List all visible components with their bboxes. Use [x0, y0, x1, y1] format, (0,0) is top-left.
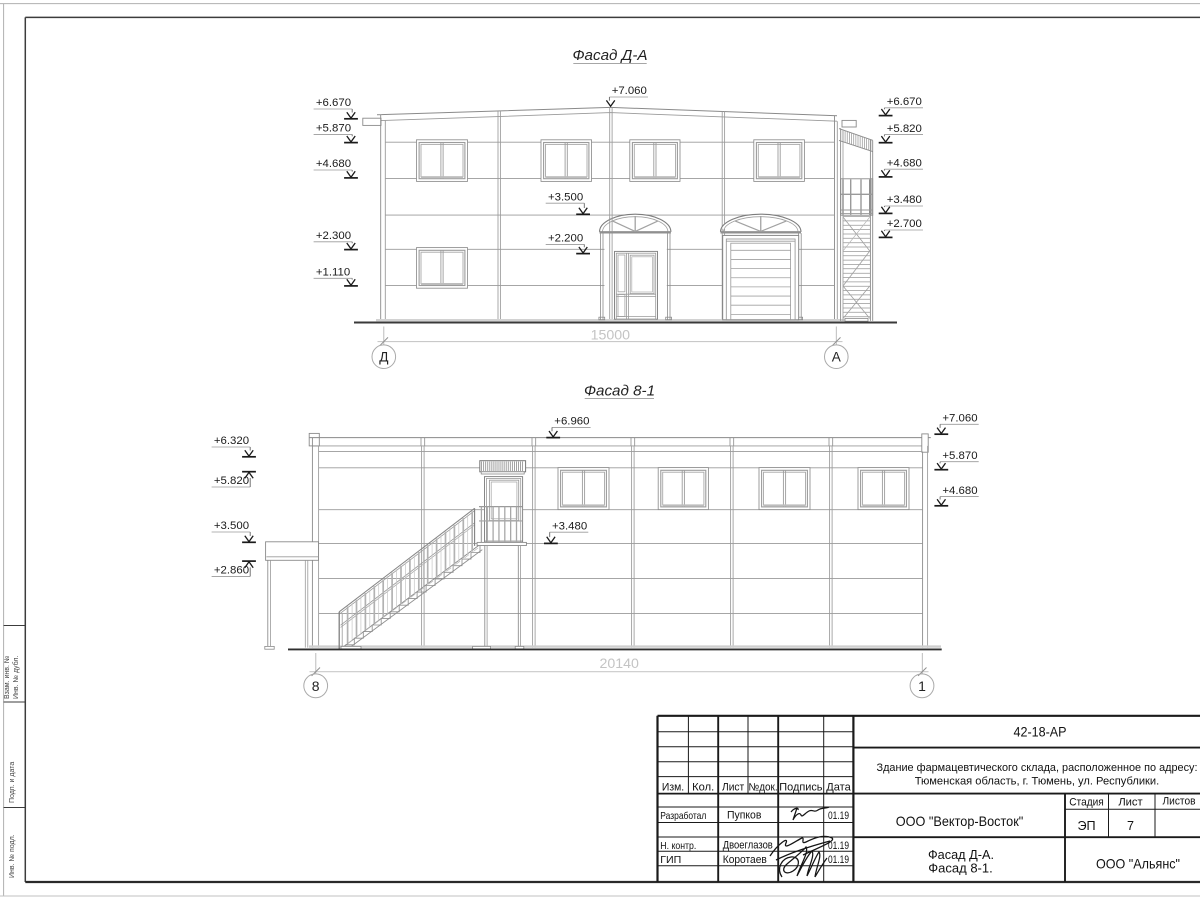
svg-text:1: 1	[918, 678, 926, 694]
svg-text:+3.500: +3.500	[548, 191, 583, 203]
svg-text:Фасад 8-1.: Фасад 8-1.	[928, 860, 993, 875]
svg-text:+1.110: +1.110	[316, 267, 350, 279]
svg-text:Разработал: Разработал	[660, 810, 706, 822]
svg-text:+3.480: +3.480	[552, 520, 587, 532]
svg-text:+5.870: +5.870	[942, 450, 977, 462]
svg-text:+6.320: +6.320	[214, 435, 249, 447]
svg-text:№док.: №док.	[749, 782, 778, 794]
svg-text:Стадия: Стадия	[1069, 797, 1104, 809]
svg-text:+7.060: +7.060	[612, 85, 647, 97]
svg-text:20140: 20140	[599, 656, 639, 672]
svg-text:А: А	[832, 350, 842, 365]
svg-text:Подпись: Подпись	[779, 782, 823, 794]
svg-text:Лист: Лист	[1118, 797, 1142, 809]
svg-text:Н. контр.: Н. контр.	[660, 841, 696, 852]
svg-text:8: 8	[312, 678, 320, 694]
svg-text:Кол.: Кол.	[692, 782, 714, 794]
svg-text:ООО "Вектор-Восток": ООО "Вектор-Восток"	[896, 814, 1024, 829]
svg-text:Инв. № подл.: Инв. № подл.	[9, 834, 16, 878]
svg-text:Подп. и дата: Подп. и дата	[9, 762, 16, 803]
svg-text:Фасад Д-А: Фасад Д-А	[572, 47, 647, 64]
svg-text:01.19: 01.19	[828, 854, 849, 866]
svg-text:+4.680: +4.680	[316, 158, 351, 170]
svg-text:01.19: 01.19	[828, 810, 849, 822]
svg-text:+5.820: +5.820	[214, 475, 249, 487]
svg-text:+4.680: +4.680	[887, 157, 922, 169]
svg-text:Коротаев: Коротаев	[723, 854, 767, 866]
svg-text:+2.300: +2.300	[316, 230, 351, 242]
svg-text:Изм.: Изм.	[662, 782, 684, 794]
svg-text:+2.200: +2.200	[548, 233, 583, 245]
svg-text:+3.480: +3.480	[887, 194, 922, 206]
svg-text:ЭП: ЭП	[1077, 819, 1095, 833]
svg-text:15000: 15000	[591, 327, 631, 343]
svg-text:Лист: Лист	[722, 782, 744, 794]
svg-text:Инв. № дубл.: Инв. № дубл.	[12, 656, 20, 699]
svg-text:Фасад 8-1: Фасад 8-1	[584, 382, 655, 399]
svg-text:+5.870: +5.870	[316, 123, 351, 135]
svg-text:+4.680: +4.680	[942, 485, 977, 497]
svg-text:+5.820: +5.820	[887, 123, 922, 135]
svg-text:42-18-АР: 42-18-АР	[1014, 725, 1067, 740]
svg-text:+3.500: +3.500	[214, 520, 249, 532]
svg-text:Тюменская область, г. Тюмень,: Тюменская область, г. Тюмень, ул. Респуб…	[915, 776, 1160, 788]
svg-text:Листов: Листов	[1163, 796, 1196, 808]
svg-text:7: 7	[1127, 819, 1134, 833]
svg-text:+2.860: +2.860	[214, 565, 249, 577]
svg-text:Д: Д	[379, 350, 388, 365]
svg-text:+6.670: +6.670	[887, 96, 922, 108]
svg-text:ООО "Альянс": ООО "Альянс"	[1096, 856, 1180, 871]
svg-text:Взам. инв. №: Взам. инв. №	[4, 656, 11, 699]
svg-text:ГИП: ГИП	[660, 855, 681, 866]
svg-text:+6.960: +6.960	[554, 416, 589, 428]
svg-text:+6.670: +6.670	[316, 97, 351, 109]
svg-text:Двоеглазов: Двоеглазов	[723, 840, 773, 852]
svg-text:+2.700: +2.700	[887, 218, 922, 230]
svg-text:Здание фармацевтического склад: Здание фармацевтического склада, располо…	[877, 762, 1198, 774]
svg-text:Пупков: Пупков	[727, 810, 761, 822]
svg-text:Дата: Дата	[826, 782, 851, 794]
svg-text:+7.060: +7.060	[942, 413, 977, 425]
